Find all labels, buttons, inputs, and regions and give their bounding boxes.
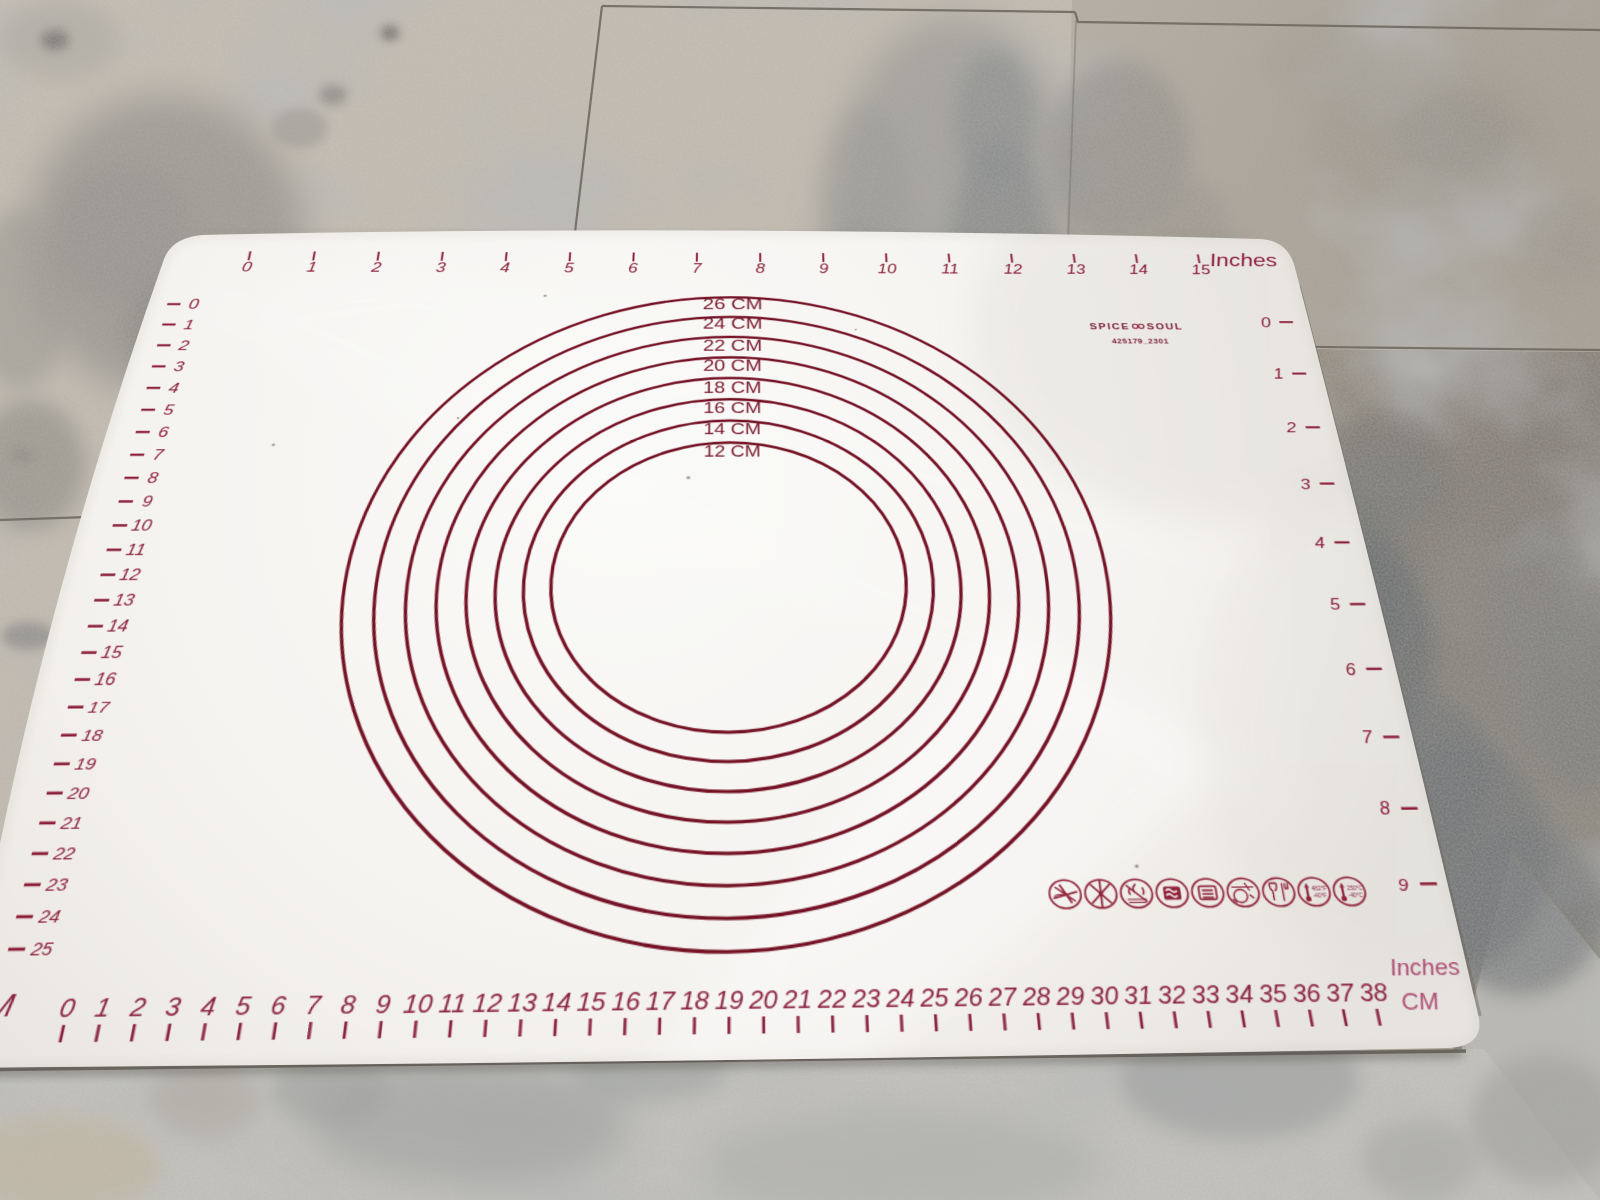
svg-text:20: 20 xyxy=(748,984,779,1015)
svg-text:7: 7 xyxy=(151,448,166,464)
svg-text:5: 5 xyxy=(234,990,254,1021)
svg-text:9: 9 xyxy=(140,493,154,510)
svg-text:10: 10 xyxy=(402,988,435,1019)
svg-text:14: 14 xyxy=(106,618,131,636)
svg-text:0: 0 xyxy=(187,297,201,312)
svg-text:11: 11 xyxy=(438,988,468,1019)
svg-text:18: 18 xyxy=(680,985,710,1016)
svg-text:27: 27 xyxy=(985,982,1020,1012)
svg-text:16: 16 xyxy=(611,986,642,1017)
svg-text:9: 9 xyxy=(374,989,393,1020)
svg-text:26: 26 xyxy=(952,982,985,1012)
svg-text:2: 2 xyxy=(369,260,383,275)
svg-text:SPICE: SPICE xyxy=(1089,321,1131,331)
svg-text:3: 3 xyxy=(435,261,447,276)
svg-text:33: 33 xyxy=(1189,979,1222,1009)
svg-text:30: 30 xyxy=(1088,980,1121,1010)
svg-text:6: 6 xyxy=(156,425,170,441)
svg-text:Inches: Inches xyxy=(1208,251,1280,271)
svg-text:32: 32 xyxy=(1156,980,1189,1010)
svg-text:20 CM: 20 CM xyxy=(703,357,762,375)
svg-text:2: 2 xyxy=(126,992,149,1023)
svg-text:4: 4 xyxy=(167,381,181,397)
svg-text:-40°F: -40°F xyxy=(1312,891,1328,898)
svg-text:19: 19 xyxy=(73,754,98,774)
svg-text:25: 25 xyxy=(27,939,54,960)
svg-text:13: 13 xyxy=(112,592,137,609)
svg-text:13: 13 xyxy=(507,987,539,1018)
svg-text:11: 11 xyxy=(941,262,960,277)
svg-text:28: 28 xyxy=(1019,981,1052,1011)
svg-text:21: 21 xyxy=(782,984,813,1015)
svg-text:22: 22 xyxy=(816,984,848,1014)
svg-text:5: 5 xyxy=(1328,596,1342,614)
svg-text:12: 12 xyxy=(118,567,143,584)
svg-text:6: 6 xyxy=(628,261,639,276)
svg-text:250°C: 250°C xyxy=(1346,884,1363,891)
svg-text:1: 1 xyxy=(182,318,195,333)
svg-text:35: 35 xyxy=(1256,978,1290,1008)
svg-text:4: 4 xyxy=(198,991,218,1022)
svg-text:SOUL: SOUL xyxy=(1146,321,1184,331)
svg-text:12: 12 xyxy=(1003,262,1024,277)
svg-text:18: 18 xyxy=(80,726,106,745)
svg-text:7: 7 xyxy=(692,261,703,276)
svg-text:6: 6 xyxy=(1343,660,1358,679)
svg-text:15: 15 xyxy=(99,644,124,662)
svg-text:26 CM: 26 CM xyxy=(703,295,763,313)
svg-text:425179_2301: 425179_2301 xyxy=(1111,337,1169,345)
svg-text:12 CM: 12 CM xyxy=(703,444,760,461)
svg-text:23: 23 xyxy=(43,875,70,895)
svg-text:10: 10 xyxy=(877,262,898,277)
svg-text:0: 0 xyxy=(57,992,79,1023)
svg-text:5: 5 xyxy=(162,403,177,419)
svg-text:25: 25 xyxy=(918,982,951,1012)
svg-text:23: 23 xyxy=(850,983,882,1013)
svg-text:CM: CM xyxy=(1399,988,1443,1015)
svg-text:9: 9 xyxy=(819,262,830,277)
svg-text:4: 4 xyxy=(499,261,510,276)
svg-text:2: 2 xyxy=(176,339,192,354)
svg-text:22 CM: 22 CM xyxy=(703,337,762,355)
svg-text:9: 9 xyxy=(1396,874,1412,895)
svg-text:1: 1 xyxy=(1272,366,1285,382)
svg-text:17: 17 xyxy=(645,985,677,1016)
svg-text:37: 37 xyxy=(1323,978,1359,1008)
svg-text:16 CM: 16 CM xyxy=(703,399,761,417)
svg-text:20: 20 xyxy=(65,783,93,803)
svg-text:1: 1 xyxy=(305,260,317,275)
svg-text:8: 8 xyxy=(1377,799,1392,819)
svg-text:8: 8 xyxy=(339,989,358,1020)
svg-text:1: 1 xyxy=(92,992,113,1023)
svg-text:7: 7 xyxy=(304,990,325,1021)
svg-text:3: 3 xyxy=(1299,477,1314,493)
svg-text:12: 12 xyxy=(472,988,504,1019)
svg-text:0: 0 xyxy=(1259,315,1273,330)
svg-text:0: 0 xyxy=(240,260,254,275)
svg-text:5: 5 xyxy=(564,261,575,276)
svg-text:10: 10 xyxy=(129,517,154,534)
svg-text:Inches: Inches xyxy=(1387,954,1463,981)
svg-text:8: 8 xyxy=(146,470,160,487)
svg-text:22: 22 xyxy=(50,843,77,864)
svg-text:24: 24 xyxy=(884,983,916,1013)
svg-text:17: 17 xyxy=(86,698,112,717)
svg-text:21: 21 xyxy=(57,813,84,833)
svg-text:24: 24 xyxy=(35,907,62,927)
svg-text:-40°C: -40°C xyxy=(1348,891,1364,898)
svg-text:482°F: 482°F xyxy=(1311,884,1328,891)
svg-text:34: 34 xyxy=(1223,979,1256,1009)
svg-text:29: 29 xyxy=(1053,981,1087,1011)
svg-text:24 CM: 24 CM xyxy=(703,314,763,332)
svg-text:3: 3 xyxy=(172,360,187,375)
svg-text:14: 14 xyxy=(1128,263,1149,278)
svg-text:4: 4 xyxy=(1313,535,1327,552)
svg-text:16: 16 xyxy=(93,671,119,689)
svg-text:19: 19 xyxy=(715,985,745,1016)
svg-text:13: 13 xyxy=(1065,263,1087,278)
svg-text:14: 14 xyxy=(541,987,572,1018)
svg-text:31: 31 xyxy=(1122,980,1154,1010)
svg-text:2: 2 xyxy=(1284,421,1299,437)
svg-text:36: 36 xyxy=(1290,978,1324,1008)
svg-text:38: 38 xyxy=(1356,977,1391,1007)
svg-text:CM: CM xyxy=(0,989,19,1025)
svg-text:8: 8 xyxy=(756,262,766,277)
svg-text:11: 11 xyxy=(124,541,147,559)
svg-text:14 CM: 14 CM xyxy=(703,420,761,438)
svg-text:15: 15 xyxy=(1190,263,1212,278)
svg-text:3: 3 xyxy=(163,991,184,1022)
svg-text:7: 7 xyxy=(1360,728,1376,747)
svg-text:6: 6 xyxy=(269,990,289,1021)
svg-text:15: 15 xyxy=(576,986,607,1017)
svg-text:18 CM: 18 CM xyxy=(703,379,762,397)
